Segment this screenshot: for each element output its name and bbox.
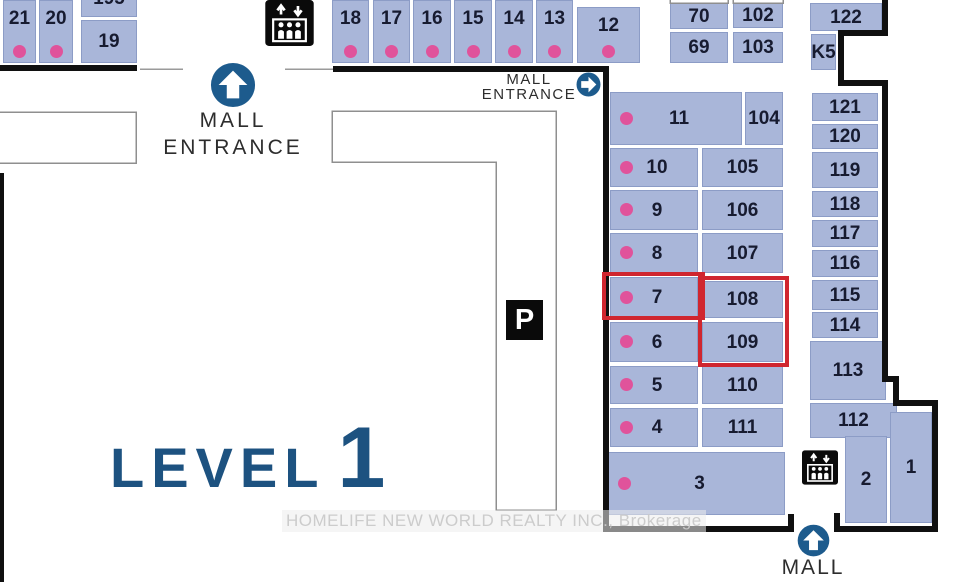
map-unit-6: 6 <box>610 322 698 362</box>
unit-dot <box>548 45 561 58</box>
highlighted-units-outline <box>698 276 789 367</box>
mall-entrance-right-arrow-icon <box>576 72 601 97</box>
unit-number: 120 <box>829 127 861 146</box>
unit-dot <box>620 421 633 434</box>
unit-number: 4 <box>652 418 663 437</box>
unit-number: 117 <box>830 224 861 243</box>
map-unit-5: 5 <box>610 366 698 404</box>
map-unit-105: 105 <box>702 148 783 187</box>
unit-number: 122 <box>830 8 862 27</box>
elevator-icon <box>802 450 838 485</box>
map-unit-20: 20 <box>39 0 73 63</box>
map-unit-107: 107 <box>702 233 783 273</box>
unit-number: 6 <box>652 333 663 352</box>
unit-number: 119 <box>830 161 861 180</box>
unit-number: 14 <box>503 9 524 28</box>
map-unit-15: 15 <box>454 0 492 63</box>
unit-number: 19 <box>98 32 119 51</box>
unit-number: 195 <box>93 0 125 8</box>
unit-number: 15 <box>462 9 483 28</box>
mall-entrance-label-top-left: MALL ENTRANCE <box>138 107 328 161</box>
unit-dot <box>426 45 439 58</box>
unit-dot <box>344 45 357 58</box>
map-unit-14: 14 <box>495 0 533 63</box>
unit-number: 106 <box>727 201 759 220</box>
unit-dot <box>620 203 633 216</box>
map-unit-4: 4 <box>610 408 698 447</box>
map-unit-70: 70 <box>670 3 728 29</box>
parking-letter: P <box>515 304 534 337</box>
unit-number: 3 <box>694 474 705 493</box>
parking-icon: P <box>506 300 543 340</box>
unit-number: 103 <box>742 38 774 57</box>
unit-dot <box>508 45 521 58</box>
map-unit-K5: K5 <box>811 34 836 70</box>
unit-number: 12 <box>598 16 619 35</box>
map-unit-9: 9 <box>610 190 698 230</box>
map-unit-19: 19 <box>81 20 137 63</box>
map-unit-110: 110 <box>702 366 783 404</box>
elevator-icon <box>264 0 315 46</box>
map-unit-106: 106 <box>702 190 783 230</box>
unit-number: 105 <box>727 158 759 177</box>
unit-number: 70 <box>688 7 709 26</box>
level-title: LEVEL 1 <box>110 415 385 501</box>
unit-dot <box>618 477 631 490</box>
unit-number: 17 <box>381 9 402 28</box>
unit-number: 2 <box>861 470 872 489</box>
map-unit-118: 118 <box>812 191 878 217</box>
unit-dot <box>50 45 63 58</box>
map-unit-114: 114 <box>812 312 878 338</box>
unit-dot <box>13 45 26 58</box>
unit-number: 10 <box>646 158 667 177</box>
level-number: 1 <box>337 415 385 501</box>
unit-number: 104 <box>748 109 780 128</box>
unit-number: 8 <box>652 244 663 263</box>
map-unit-18: 18 <box>332 0 369 63</box>
unit-number: K5 <box>811 43 835 62</box>
unit-dot <box>602 45 615 58</box>
unit-number: 111 <box>728 418 758 437</box>
map-unit-69: 69 <box>670 32 728 63</box>
map-unit-8: 8 <box>610 233 698 273</box>
unit-number: 114 <box>830 316 861 335</box>
mall-entrance-up-arrow-icon <box>210 62 256 108</box>
brokerage-watermark: HOMELIFE NEW WORLD REALTY INC., Brokerag… <box>282 510 706 532</box>
map-unit-17: 17 <box>373 0 410 63</box>
mall-entrance-line1: MALL <box>138 107 328 134</box>
unit-number: 102 <box>742 6 774 25</box>
map-unit-1: 1 <box>890 412 932 523</box>
unit-number: 107 <box>727 244 759 263</box>
map-unit-122: 122 <box>810 3 882 31</box>
map-unit-103: 103 <box>733 32 783 63</box>
mall-entrance-line2: ENTRANCE <box>138 134 328 161</box>
map-unit-102: 102 <box>733 2 783 28</box>
map-unit-2: 2 <box>845 436 887 523</box>
unit-dot <box>620 378 633 391</box>
unit-dot <box>385 45 398 58</box>
level-word: LEVEL <box>110 440 325 496</box>
unit-number: 11 <box>669 109 689 128</box>
map-unit-13: 13 <box>536 0 573 63</box>
highlighted-units-outline <box>602 272 705 320</box>
unit-number: 116 <box>830 254 861 273</box>
mall-floor-plan: 212019519181716151413127010269103122K511… <box>0 0 960 582</box>
map-unit-104: 104 <box>745 92 783 145</box>
map-unit-10: 10 <box>610 148 698 187</box>
unit-number: 21 <box>9 9 30 28</box>
unit-number: 20 <box>45 9 66 28</box>
mall-entrance-line2: ENTRANCE <box>464 87 594 102</box>
unit-number: 16 <box>421 9 442 28</box>
unit-number: 113 <box>833 361 864 380</box>
map-unit-11: 11 <box>610 92 742 145</box>
unit-dot <box>620 335 633 348</box>
map-unit-113: 113 <box>810 341 886 400</box>
unit-number: 18 <box>340 9 361 28</box>
unit-number: 69 <box>688 38 709 57</box>
map-unit-121: 121 <box>812 93 878 121</box>
unit-dot <box>620 161 633 174</box>
map-unit-16: 16 <box>413 0 451 63</box>
unit-number: 118 <box>830 195 861 214</box>
unit-number: 110 <box>727 376 758 395</box>
mall-entrance-label-bottom: MALL <box>763 556 863 580</box>
unit-dot <box>467 45 480 58</box>
unit-number: 112 <box>838 411 869 430</box>
map-unit-116: 116 <box>812 250 878 277</box>
mall-entrance-bottom-arrow-icon <box>797 524 830 557</box>
map-unit-3: 3 <box>608 452 785 515</box>
unit-number: 1 <box>906 458 917 477</box>
map-unit-117: 117 <box>812 220 878 247</box>
map-unit-115: 115 <box>812 280 878 310</box>
map-unit-12: 12 <box>577 7 640 63</box>
unit-number: 121 <box>829 98 861 117</box>
map-unit-120: 120 <box>812 124 878 149</box>
unit-dot <box>620 112 633 125</box>
map-unit-112: 112 <box>810 403 897 438</box>
mall-entrance-label-top-right: MALL ENTRANCE <box>464 72 594 102</box>
unit-dot <box>620 246 633 259</box>
map-unit-195: 195 <box>81 0 137 17</box>
mall-entrance-line1: MALL <box>464 72 594 87</box>
unit-number: 9 <box>652 201 663 220</box>
unit-number: 5 <box>652 376 663 395</box>
unit-number: 115 <box>830 286 861 305</box>
left-room-outline <box>0 112 136 163</box>
unit-number: 13 <box>544 9 565 28</box>
map-unit-21: 21 <box>3 0 36 63</box>
map-unit-111: 111 <box>702 408 783 447</box>
map-unit-119: 119 <box>812 152 878 188</box>
